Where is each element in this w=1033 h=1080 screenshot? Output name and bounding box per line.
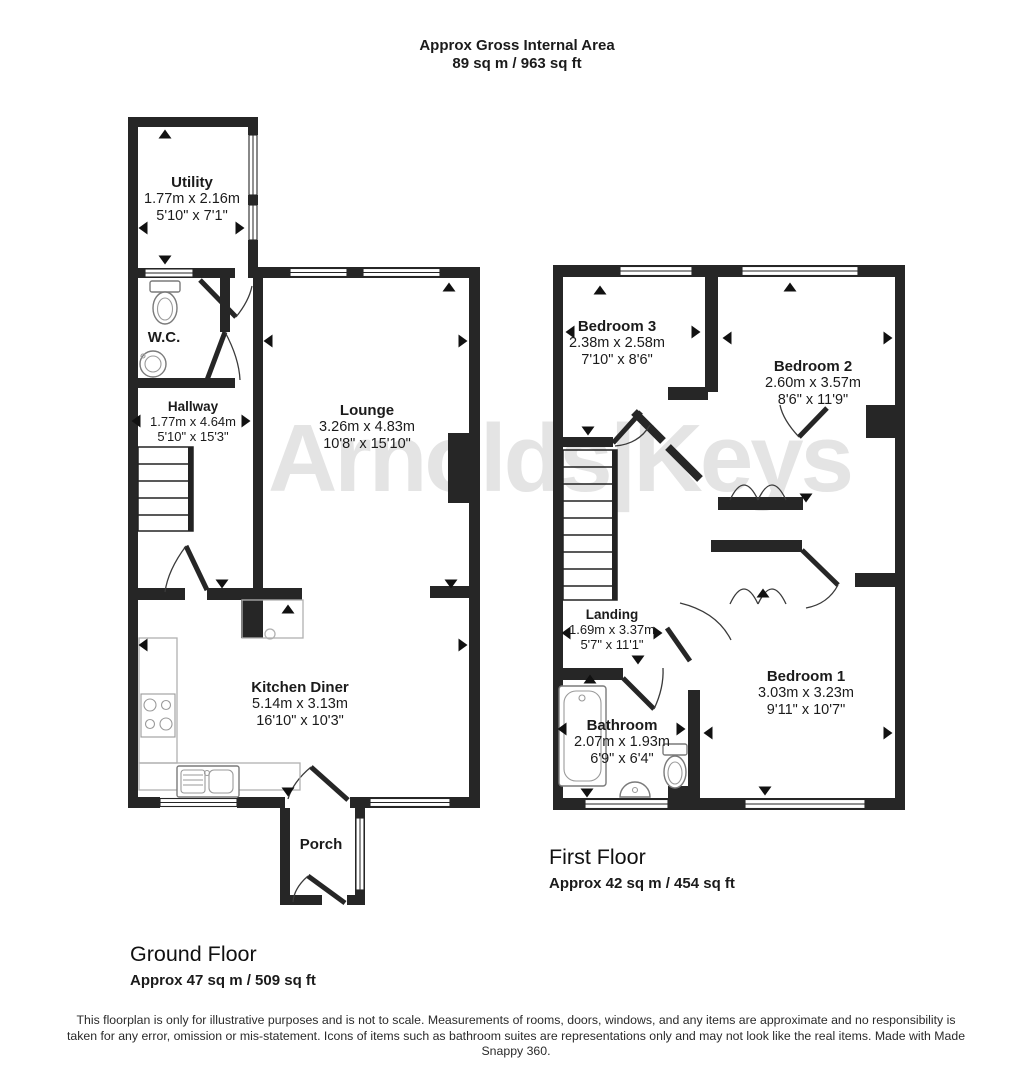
- room-label-bedroom2: Bedroom 2 2.60m x 3.57m 8'6" x 11'9": [765, 358, 861, 409]
- room-label-utility: Utility 1.77m x 2.16m 5'10" x 7'1": [144, 174, 240, 225]
- page-title: Approx Gross Internal Area 89 sq m / 963…: [419, 37, 614, 72]
- room-label-lounge: Lounge 3.26m x 4.83m 10'8" x 15'10": [319, 402, 415, 453]
- room-label-bedroom3: Bedroom 3 2.38m x 2.58m 7'10" x 8'6": [569, 318, 665, 369]
- room-label-porch: Porch: [300, 836, 343, 853]
- floorplan-page: Arnolds|Keys: [0, 0, 1033, 1080]
- room-label-hallway: Hallway 1.77m x 4.64m 5'10" x 15'3": [150, 399, 236, 444]
- title-area: 89 sq m / 963 sq ft: [419, 55, 614, 73]
- ground-floor-plan: [128, 117, 480, 905]
- first-stairs-icon: [563, 450, 617, 600]
- room-label-landing: Landing 1.69m x 3.37m 5'7" x 11'1": [569, 607, 655, 652]
- room-label-kitchen-diner: Kitchen Diner 5.14m x 3.13m 16'10" x 10'…: [251, 679, 349, 730]
- disclaimer-text: This floorplan is only for illustrative …: [63, 1013, 969, 1060]
- room-label-bathroom: Bathroom 2.07m x 1.93m 6'9" x 6'4": [574, 717, 670, 768]
- wc-toilet-icon: [150, 281, 180, 324]
- ground-floor-caption: Ground Floor Approx 47 sq m / 509 sq ft: [130, 942, 316, 989]
- bathroom-basin-icon: [620, 782, 650, 797]
- room-label-bedroom1: Bedroom 1 3.03m x 3.23m 9'11" x 10'7": [758, 668, 854, 719]
- wc-basin-icon: [140, 351, 166, 377]
- ground-stairs-icon: [138, 447, 193, 531]
- floorplan-drawing: [0, 0, 1033, 1080]
- kitchen-sink-icon: [177, 766, 239, 797]
- first-doors: [613, 405, 838, 709]
- title-line: Approx Gross Internal Area: [419, 37, 614, 55]
- stove-icon: [141, 694, 175, 737]
- first-floor-caption: First Floor Approx 42 sq m / 454 sq ft: [549, 845, 735, 892]
- room-label-wc: W.C.: [148, 329, 181, 346]
